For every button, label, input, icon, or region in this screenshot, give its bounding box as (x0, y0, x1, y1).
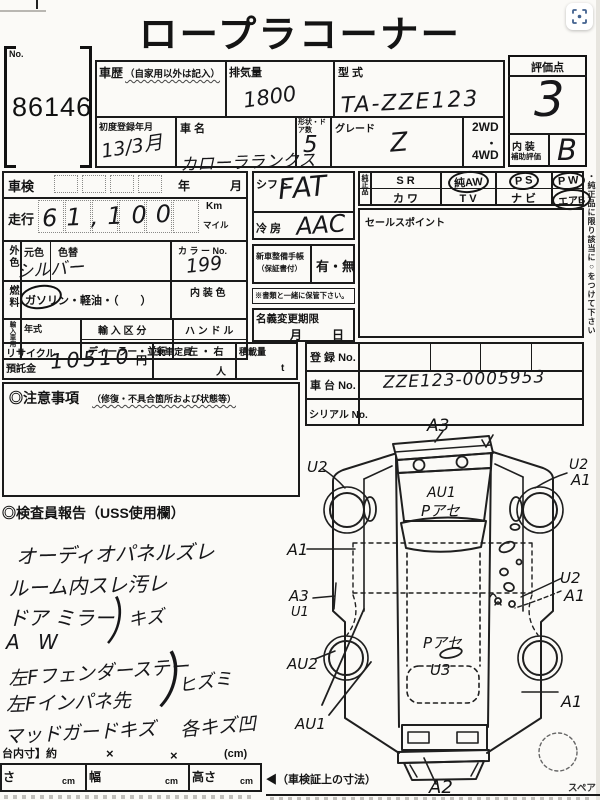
damage-left-rear-au1: AU1 (294, 715, 326, 733)
damage-roof-pase: Pアセ (423, 634, 463, 652)
chassis-no-label: 車 台 No. (310, 377, 356, 393)
capacity-unit: 人 (216, 363, 226, 378)
left-arrow-icon: ◀ (266, 774, 277, 786)
dims-table: さ cm 幅 cm 高さ cm (0, 763, 262, 792)
grade-label: グレード (335, 120, 375, 135)
displacement-label: 排気量 (229, 64, 262, 80)
import-year-label: 年式 (24, 322, 42, 335)
genuine-sr: S R (396, 175, 414, 187)
capacity-label: 乗車定員 (156, 345, 192, 358)
height-unit: cm (240, 776, 253, 786)
fuel-side-label: 燃料 (5, 285, 20, 309)
ac-label: 冷 房 (256, 220, 281, 236)
keep-note: ※書類と一緒に保管下さい。 (255, 291, 348, 301)
recycle-unit: 円 (136, 352, 147, 368)
damage-front-right-a1: A1 (570, 471, 591, 489)
transfer-label: 名義変更期限 (256, 311, 319, 326)
score-box: 評価点 3 内 装 補助評価 B (508, 55, 587, 167)
damage-right-a1: A1 (563, 586, 585, 605)
note-line-1: オーディオパネルズレ (16, 535, 215, 569)
height-label: 高さ (192, 768, 216, 785)
shaken-dims-note: （車検証上の寸法） (277, 774, 376, 786)
history-note: （自家用以外は記入） (125, 66, 220, 80)
damage-roof-u3: U3 (430, 661, 451, 679)
recycle-label1: リサイクル (6, 345, 56, 360)
model-label: 型 式 (338, 64, 363, 80)
book-label: 新車整備手帳 (256, 251, 304, 262)
book-value: 有・無 (316, 256, 355, 275)
damage-left-u1: U1 (291, 605, 309, 620)
caution-sub: （修復・不具合箇所および状態等） (92, 392, 236, 405)
score-value: 3 (534, 72, 565, 128)
damage-front-a3: A3 (426, 416, 449, 436)
note-line-6: 左Fインパネ先 (6, 686, 132, 717)
lot-number: 86146 (12, 92, 92, 123)
no-label: No. (9, 49, 24, 59)
interior-value: B (557, 133, 577, 167)
cut-row-line (266, 794, 600, 796)
damage-left-a1: A1 (286, 540, 308, 559)
inner-dims-label: 台内寸】約 (2, 745, 57, 761)
recycle-row: リサイクル 預託金 10510 円 乗車定員 人 積載量 t (2, 342, 298, 380)
load-label: 積載量 (239, 345, 266, 358)
damage-hood-pase: Pアセ (421, 502, 461, 520)
damage-front-left-u2: U2 (307, 458, 328, 476)
damage-right-u2: U2 (560, 569, 581, 587)
shaken-month: 月 (230, 177, 242, 194)
middle-column: シフト FAT 冷 房 AAC 新車整備手帳 （保証書付） 有・無 ※書類と一緒… (252, 171, 355, 342)
dims-x2: × (170, 748, 178, 763)
dims-x1: × (106, 746, 114, 761)
header-table: 車歴 （自家用以外は記入） 排気量 1800 型 式 TA-ZZE123 初度登… (95, 60, 505, 168)
damage-left-a3: A3 (288, 587, 309, 605)
damage-right-rear-a1: A1 (560, 692, 582, 711)
reg-no-label: 登 録 No. (310, 349, 356, 365)
caution-box: ◎注意事項 （修復・不具合箇所および状態等） (2, 382, 300, 497)
note-line-7: マッドガードキズ (3, 714, 156, 749)
caution-label: ◎注意事項 (9, 388, 79, 408)
book-sub: （保証書付） (257, 263, 302, 274)
genuine-parts-table: 純正品 S R 純AW P S P W カ ワ T V ナ ビ エアB (358, 171, 584, 206)
mileage-unit-km: Km (206, 201, 222, 212)
width-label: 幅 (89, 768, 101, 785)
spare-label: スペア (568, 783, 596, 794)
transfer-month: 月 (290, 326, 302, 343)
len-label: さ (3, 768, 15, 785)
car-damage-diagram: A3 U2 U2 A1 AU1 Pアセ A1 A3 U1 U2 A1 AU2 A… (285, 415, 600, 800)
genuine-kawa: カ ワ (393, 193, 418, 205)
mileage-label: 走行 (8, 209, 34, 228)
lot-number-block: No. 86146 (4, 46, 92, 168)
inspector-header: ◎検査員報告（USS使用欄） (2, 503, 185, 523)
dims-unit: (cm) (224, 748, 247, 760)
drive-2wd: 2WD (472, 120, 499, 134)
genuine-side-label: 純正品 (359, 174, 369, 195)
mileage-unit-mile: マイル (203, 219, 229, 231)
grade-value: Z (389, 127, 409, 158)
genuine-navi: ナ ビ (511, 193, 536, 205)
car-name-label: 車 名 (180, 120, 205, 136)
interior-sublabel: 補助評価 (511, 151, 541, 162)
import-class-label: 輸 入 区 分 (98, 322, 146, 337)
color-no-value: 199 (185, 252, 223, 278)
genuine-vertical-note: ・純正品に限り該当に○をつけて下さい (586, 172, 597, 422)
transfer-day: 日 (332, 326, 344, 343)
shift-value: FAT (277, 169, 328, 206)
shaken-year: 年 (178, 177, 190, 194)
mileage-value: 61,100 (42, 200, 181, 233)
note-line-3: ドア ミラー (8, 602, 114, 631)
auction-sheet-page: ロープラコーナー No. 86146 車歴 （自家用以外は記入） 排気量 180… (0, 0, 600, 800)
genuine-ps: P S (508, 171, 539, 191)
interior-color-label: 内 装 色 (190, 284, 226, 299)
history-label: 車歴 (99, 64, 123, 81)
width-unit: cm (165, 776, 178, 786)
note-line-4: A W (6, 630, 64, 654)
len-unit: cm (62, 776, 75, 786)
doors-value: 5 (303, 132, 318, 158)
handle-label: ハ ン ド ル (185, 322, 233, 337)
drive-4wd: 4WD (472, 148, 499, 162)
damage-left-rear-au2: AU2 (286, 655, 318, 673)
cut-row-text (4, 795, 254, 799)
left-info-table: 車検 年 月 走行 61,100 Km マイル 外色 元色 色替 シルバー カ … (2, 171, 248, 360)
recycle-label2: 預託金 (6, 360, 36, 375)
registration-table: 登 録 No. 車 台 No. ZZE123-0005953 シリアル No. (305, 342, 584, 426)
sales-point-label: セールスポイント (365, 214, 445, 229)
note-tail: 各キズ凹 (179, 709, 257, 743)
sales-point-box: セールスポイント (358, 208, 584, 338)
brace-1-label: キズ (127, 602, 166, 632)
load-unit: t (281, 363, 284, 374)
exterior-color-value: シルバー (15, 253, 85, 283)
note-line-2: ルーム内スレ汚レ (8, 567, 168, 602)
ac-value: AAC (295, 209, 346, 240)
damage-hood-au1: AU1 (426, 485, 456, 501)
shaken-label: 車検 (8, 176, 34, 195)
genuine-tv: T V (459, 193, 476, 205)
